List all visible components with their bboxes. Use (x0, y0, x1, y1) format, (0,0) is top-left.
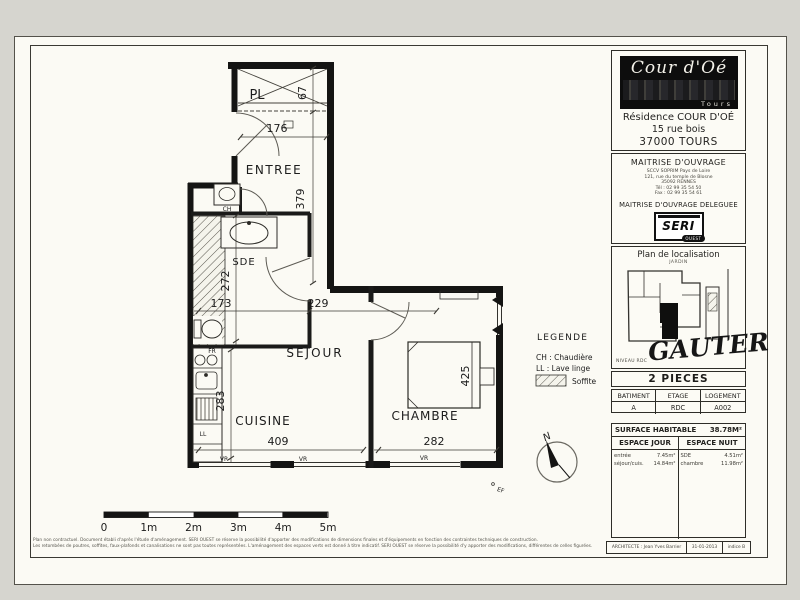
map-hatch-area (708, 293, 717, 311)
room-label-sejour: SEJOUR (286, 346, 343, 360)
dim-cuisine-width: 409 (268, 435, 289, 448)
moa-address: SCCV SOPRIM Pays de Loire 121, rue du te… (612, 169, 745, 197)
scale-4m: 4m (275, 522, 292, 534)
surface-day-header: ESPACE JOUR (612, 437, 679, 449)
legend-ll: LL : Lave linge (536, 364, 591, 373)
unit-type-header: 2 PIECES (611, 371, 746, 387)
logo-title: Cour d'Oé (620, 58, 738, 78)
moa-title: MAITRISE D'OUVRAGE (612, 158, 745, 167)
disclaimer-line-2: Les retombées de poutres, soffites, faux… (33, 544, 603, 550)
room-label-cuisine: CUISINE (235, 414, 290, 428)
room-label-sde: SDE (232, 257, 255, 268)
surface-room: entrée (614, 452, 631, 460)
seri-logo-badge: OUEST (682, 235, 704, 242)
surface-room: séjour/cuis. (614, 460, 644, 468)
plan-date: 31-01-2013 (687, 542, 723, 553)
unit-table-value-logement: A002 (701, 402, 745, 414)
legend: LEGENDE CH : Chaudière LL : Lave linge S… (536, 333, 597, 386)
surface-value: 4.51m² (724, 452, 743, 460)
scale-5m: 5m (320, 522, 337, 534)
logo-photo-strip (623, 80, 735, 100)
tag-fr: FR (208, 348, 216, 355)
compass-needle (546, 440, 559, 468)
surface-value: 7.45m² (657, 452, 676, 460)
wc-tank (194, 320, 201, 338)
disclaimer: Plan non contractuel. Document établi d'… (33, 538, 603, 549)
scale-bar: 0 1m 2m 3m 4m 5m (101, 512, 337, 534)
sde-door (266, 257, 310, 301)
dim-sde-width: 173 (211, 297, 232, 310)
moa-line: Fax : 02 99 35 54 61 (612, 191, 745, 197)
tag-ll: LL (200, 431, 207, 438)
project-owner-box: MAITRISE D'OUVRAGE SCCV SOPRIM Pays de L… (611, 153, 746, 244)
legend-ch: CH : Chaudière (536, 353, 593, 362)
surface-night-column: SDE 4.51m² chambre 11.98m² (679, 450, 746, 539)
tag-vr-cuisine: VR (220, 456, 228, 463)
tag-vr-sejour: VR (299, 456, 307, 463)
wc-bowl (202, 320, 222, 338)
location-plan-title: Plan de localisation (612, 250, 745, 260)
bedroom-door (371, 302, 409, 340)
room-label-entree: ENTREE (246, 163, 302, 177)
compass: N (537, 431, 577, 482)
unit-table-header-batiment: BATIMENT (612, 390, 656, 402)
surface-row: SDE 4.51m² (681, 452, 744, 460)
unit-table-header-logement: LOGEMENT (701, 390, 745, 402)
surface-value: 11.98m² (721, 460, 743, 468)
residence-name: Résidence COUR D'OÉ (612, 112, 745, 123)
unit-table-header-etage: ETAGE (656, 390, 700, 402)
room-label-chambre: CHAMBRE (391, 409, 458, 423)
scale-0: 0 (101, 522, 108, 534)
residence-city: 37000 TOURS (612, 136, 745, 148)
unit-table-value-etage: RDC (656, 402, 700, 414)
dim-sde-height: 272 (219, 271, 232, 292)
unit-table-value-batiment: A (612, 402, 656, 414)
developer-logo-box: Cour d'Oé Tours Résidence COUR D'OÉ 15 r… (611, 50, 746, 151)
dim-entree-width: 176 (267, 122, 288, 135)
tag-ef: EF (496, 486, 506, 495)
room-label-pl: PL (249, 88, 265, 103)
legend-title: LEGENDE (537, 333, 588, 343)
moa-delegated-title: MAITRISE D'OUVRAGE DELEGUEE (612, 201, 745, 209)
surface-title: SURFACE HABITABLE (615, 426, 696, 434)
dim-cuisine-height: 283 (214, 391, 227, 412)
scale-3m: 3m (230, 522, 247, 534)
revision-index: indice B (723, 542, 750, 553)
unit-info-table: BATIMENT ETAGE LOGEMENT A RDC A002 (611, 389, 746, 413)
nightstand (480, 368, 494, 385)
surface-night-header: ESPACE NUIT (679, 437, 745, 449)
surface-value: 14.84m² (654, 460, 676, 468)
surface-row: séjour/cuis. 14.84m² (614, 460, 676, 468)
legend-soffite: Soffite (572, 377, 597, 386)
location-plan-level: NIVEAU RDC (616, 359, 647, 364)
dim-entree-height: 379 (294, 189, 307, 210)
seri-logo-text: SERI (656, 219, 702, 233)
seri-logo-bar (658, 215, 700, 218)
dim-sejour-width: 229 (308, 297, 329, 310)
surface-day-column: entrée 7.45m² séjour/cuis. 14.84m² (612, 450, 679, 539)
dim-pl-depth: 67 (296, 86, 309, 100)
architect-name: ARCHITECTE : Jean Yves Barrier (607, 542, 687, 553)
disclaimer-line-1: Plan non contractuel. Document établi d'… (33, 538, 603, 544)
highlighted-unit (660, 303, 678, 339)
surface-row: entrée 7.45m² (614, 452, 676, 460)
residence-street: 15 rue bois (612, 124, 745, 135)
surface-row: chambre 11.98m² (681, 460, 744, 468)
architect-bar: ARCHITECTE : Jean Yves Barrier 31-01-201… (606, 541, 751, 554)
legend-soffite-swatch (536, 375, 566, 386)
tag-ch: CH (223, 206, 232, 213)
ef-symbol (492, 483, 495, 486)
dim-chambre-height: 425 (459, 366, 472, 387)
dim-chambre-width: 282 (424, 435, 445, 448)
scale-1m: 1m (140, 522, 157, 534)
compass-north-label: N (541, 431, 553, 444)
scale-2m: 2m (185, 522, 202, 534)
seri-logo: SERI OUEST (654, 212, 704, 241)
surface-room: SDE (681, 452, 692, 460)
surface-total: 38.78M² (710, 426, 742, 434)
tag-vr-chambre: VR (420, 455, 428, 462)
surface-table: SURFACE HABITABLE 38.78M² ESPACE JOUR ES… (611, 423, 746, 538)
logo-city: Tours (701, 100, 733, 108)
residence-address: Résidence COUR D'OÉ 15 rue bois 37000 TO… (612, 112, 745, 148)
surface-room: chambre (681, 460, 704, 468)
developer-logo: Cour d'Oé Tours (620, 56, 738, 109)
